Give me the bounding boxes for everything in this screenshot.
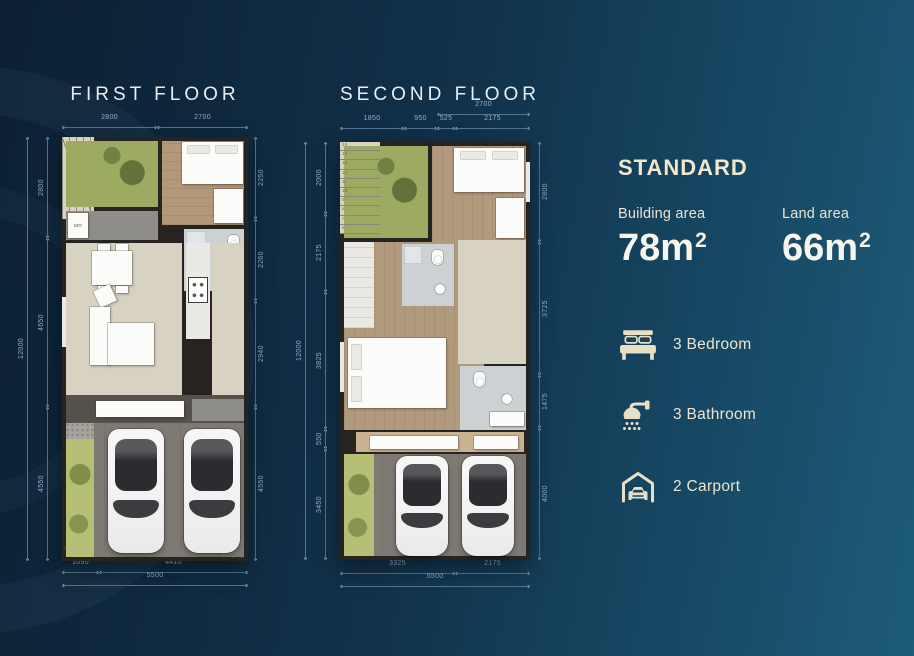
feature-bathroom: 3 Bathroom — [618, 396, 756, 434]
sf-master-bed — [348, 338, 446, 408]
feature-label: 3 Bathroom — [673, 406, 756, 424]
ff-bed — [182, 142, 243, 184]
floorplan-presentation: FIRST FLOOR 2800 2700 12000 2800 4650 45… — [0, 0, 914, 656]
ff-front-step — [192, 399, 244, 421]
sf-dim-right-1: 3725 — [536, 242, 549, 375]
building-area-label: Building area — [618, 206, 706, 222]
stair-step: 15 — [340, 142, 380, 151]
building-area-value: 78m2 — [618, 227, 706, 270]
building-area-block: Building area 78m2 — [618, 206, 706, 270]
ff-dim-right-3: 4550 — [252, 407, 265, 561]
ff-dining-table — [92, 251, 132, 285]
ff-chair — [116, 286, 128, 293]
sf-garden-strip — [344, 454, 374, 556]
sf-dim-top-1: 950 — [404, 117, 437, 130]
feature-label: 3 Bedroom — [673, 336, 752, 354]
sf-dim-right-0: 2800 — [536, 142, 549, 242]
sf-toilet-rear — [474, 372, 485, 387]
sf-dim-top-2: 525 — [437, 117, 455, 130]
ff-sliding-door — [96, 401, 184, 417]
ff-gravel-strip — [66, 423, 94, 439]
land-area-value: 66m2 — [782, 227, 870, 270]
ff-sofa-back — [90, 307, 110, 365]
ff-window — [62, 297, 66, 347]
sf-dim-left-3: 550 — [316, 429, 329, 449]
sf-toilet-mid — [432, 250, 443, 265]
sf-wardrobe — [344, 242, 374, 328]
sf-planter-box — [474, 436, 518, 449]
stair-step: 12 — [340, 170, 380, 179]
ff-dim-left-1: 4650 — [38, 238, 51, 407]
stair-step: 10 — [340, 188, 380, 197]
ff-hallway — [212, 243, 244, 395]
ff-dim-left-2: 4550 — [38, 407, 51, 561]
ff-stove — [188, 277, 208, 303]
ff-car-1 — [108, 429, 164, 553]
land-area-label: Land area — [782, 206, 870, 222]
stair-step: 14 — [340, 151, 380, 160]
sf-dim-left-1: 2175 — [316, 214, 329, 292]
ff-chair — [98, 244, 110, 251]
ff-dim-left-outer: 12000 — [18, 137, 31, 561]
sf-hallway — [458, 240, 526, 364]
stair-step: 13 — [340, 160, 380, 169]
feature-carport: 2 Carport — [618, 468, 740, 506]
sf-dim-left-outer: 12000 — [296, 142, 309, 560]
sf-dim-right-3: 4000 — [536, 428, 549, 560]
ff-dim-top-0: 2800 — [62, 116, 157, 129]
first-floor-title: FIRST FLOOR — [62, 84, 248, 106]
sf-dim-left-2: 3825 — [316, 292, 329, 429]
sf-dim-right-2: 1475 — [536, 375, 549, 428]
ff-garden — [66, 141, 158, 207]
sf-dim-bottom-outer: 5500 — [340, 575, 530, 588]
sf-car-2 — [462, 456, 514, 556]
sf-planter-box — [370, 436, 458, 449]
sf-window — [340, 342, 344, 392]
ff-dim-right-1: 2260 — [252, 219, 265, 301]
ff-utility-box: MO — [68, 213, 88, 238]
sf-shower-area — [404, 246, 422, 264]
sf-stairs: 15 14 13 12 11 10 9 8 7 6 — [340, 142, 380, 234]
sf-dim-top-3: 2175 — [455, 117, 530, 130]
ff-dim-left-0: 2800 — [38, 137, 51, 238]
sf-bedroom-desk — [496, 198, 524, 238]
stair-step: 7 — [340, 216, 380, 225]
ff-bedroom-desk — [214, 189, 243, 223]
feature-label: 2 Carport — [673, 478, 740, 496]
superscript-2: 2 — [859, 229, 871, 252]
ff-garden-strip — [66, 439, 94, 557]
ff-dim-right-0: 2250 — [252, 137, 265, 219]
ff-dim-bottom-outer: 5500 — [62, 574, 248, 587]
stair-step: 8 — [340, 206, 380, 215]
garage-icon — [618, 468, 658, 506]
stair-step: 9 — [340, 197, 380, 206]
sf-vanity — [490, 412, 524, 426]
superscript-2: 2 — [695, 229, 707, 252]
sf-dim-left-4: 3450 — [316, 449, 329, 560]
sf-dim-top-0: 1850 — [340, 117, 404, 130]
ff-dim-top-1: 2700 — [157, 116, 248, 129]
sf-sink-mid — [435, 284, 445, 294]
first-floor-plan: MO UP 1 2 3 — [62, 137, 248, 561]
ff-chair — [116, 244, 128, 251]
feature-bedroom: 3 Bedroom — [618, 326, 752, 364]
sf-car-1 — [396, 456, 448, 556]
stair-step: 6 — [340, 225, 380, 234]
second-floor-plan: 15 14 13 12 11 10 9 8 7 6 — [340, 142, 530, 560]
sf-dim-left-0: 2000 — [316, 142, 329, 214]
ff-utility-label: MO — [68, 213, 88, 238]
shower-icon — [618, 396, 658, 434]
stair-step: 11 — [340, 179, 380, 188]
sf-window — [526, 162, 530, 202]
bed-icon — [618, 326, 658, 364]
land-area-block: Land area 66m2 — [782, 206, 870, 270]
ff-car-2 — [184, 429, 240, 553]
sf-bed-2 — [454, 148, 524, 192]
ff-sofa-seat — [108, 323, 154, 365]
plan-type-title: STANDARD — [618, 155, 748, 181]
sf-sink-rear — [502, 394, 512, 404]
ff-dim-right-2: 2940 — [252, 301, 265, 407]
